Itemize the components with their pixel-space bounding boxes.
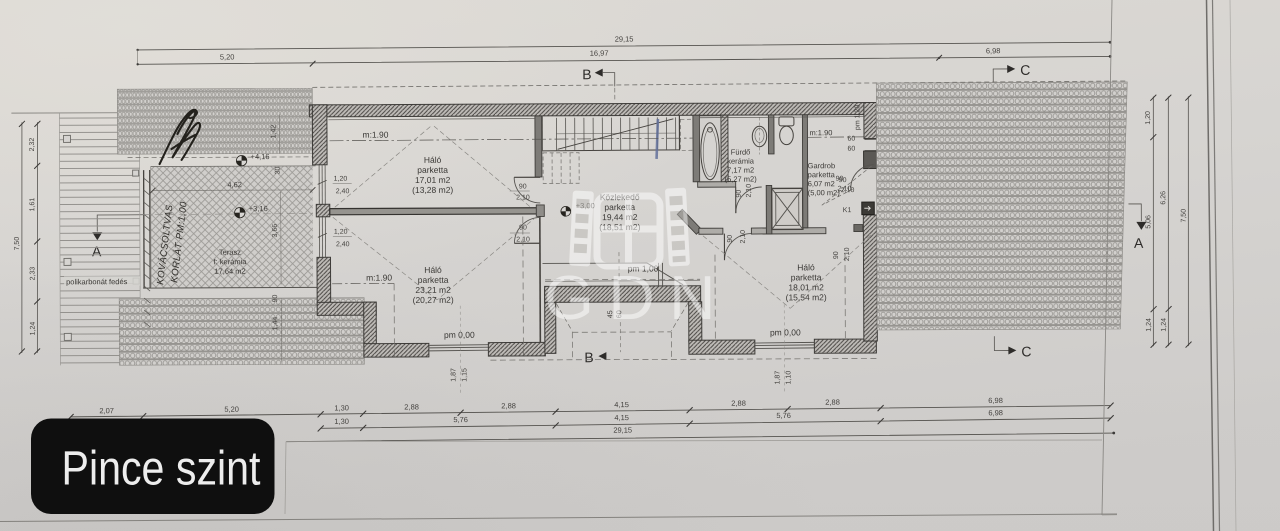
svg-text:Gardrob: Gardrob xyxy=(808,161,836,170)
svg-text:f: kerámia: f: kerámia xyxy=(214,257,248,266)
svg-text:23,21 m2: 23,21 m2 xyxy=(415,285,451,295)
svg-text:2,10: 2,10 xyxy=(838,186,852,193)
svg-text:2,88: 2,88 xyxy=(825,398,840,407)
svg-text:6,98: 6,98 xyxy=(988,396,1003,405)
svg-text:5,76: 5,76 xyxy=(453,415,468,424)
svg-text:pm 0,00: pm 0,00 xyxy=(444,330,475,340)
svg-text:m:1.90: m:1.90 xyxy=(366,273,392,283)
svg-text:6,98: 6,98 xyxy=(988,408,1003,417)
svg-text:17,64 m2: 17,64 m2 xyxy=(214,267,245,276)
svg-text:1,15: 1,15 xyxy=(461,368,468,382)
svg-text:1,24: 1,24 xyxy=(1146,318,1153,332)
svg-text:90: 90 xyxy=(736,190,743,198)
svg-text:A: A xyxy=(1134,235,1144,251)
svg-text:(5,27 m2): (5,27 m2) xyxy=(725,175,758,184)
svg-text:GDN: GDN xyxy=(544,264,730,333)
svg-text:+4,16: +4,16 xyxy=(251,152,270,161)
svg-text:C: C xyxy=(1021,343,1031,359)
svg-text:parketta: parketta xyxy=(417,165,448,175)
svg-text:3,66: 3,66 xyxy=(272,224,279,238)
svg-text:4,15: 4,15 xyxy=(614,400,629,409)
svg-text:1,87: 1,87 xyxy=(774,371,781,385)
svg-text:parketta: parketta xyxy=(418,275,449,285)
svg-text:parketta: parketta xyxy=(791,272,822,282)
svg-text:2,07: 2,07 xyxy=(99,406,114,415)
svg-text:pm 1,20: pm 1,20 xyxy=(854,105,861,130)
svg-text:5,06: 5,06 xyxy=(1145,215,1152,229)
svg-text:1,30: 1,30 xyxy=(334,417,349,426)
svg-text:polikarbonát fedés: polikarbonát fedés xyxy=(66,277,128,286)
svg-text:90: 90 xyxy=(836,176,844,183)
svg-text:B: B xyxy=(582,66,591,82)
svg-text:7,50: 7,50 xyxy=(14,237,21,251)
svg-text:m:1.90: m:1.90 xyxy=(362,130,388,140)
svg-text:4,15: 4,15 xyxy=(614,413,629,422)
svg-text:2,88: 2,88 xyxy=(501,401,516,410)
svg-text:30: 30 xyxy=(275,167,282,175)
svg-text:2,10: 2,10 xyxy=(740,230,747,244)
svg-text:1,20: 1,20 xyxy=(1145,111,1152,125)
svg-text:90: 90 xyxy=(272,295,279,303)
svg-text:2,10: 2,10 xyxy=(746,184,753,198)
svg-text:18,01 m2: 18,01 m2 xyxy=(788,282,824,292)
svg-text:29,15: 29,15 xyxy=(615,35,634,44)
svg-text:90: 90 xyxy=(833,251,840,259)
svg-text:Terasz: Terasz xyxy=(219,248,241,257)
svg-text:19,44 m2: 19,44 m2 xyxy=(602,212,638,222)
svg-text:1,10: 1,10 xyxy=(785,371,792,385)
svg-text:6,07 m2: 6,07 m2 xyxy=(808,179,835,188)
svg-text:1,42: 1,42 xyxy=(270,125,277,139)
svg-text:29,15: 29,15 xyxy=(613,426,632,435)
svg-text:6,98: 6,98 xyxy=(986,46,1001,55)
svg-text:Háló: Háló xyxy=(424,265,442,275)
svg-text:(15,54 m2): (15,54 m2) xyxy=(786,292,827,302)
svg-text:6,26: 6,26 xyxy=(1160,191,1167,205)
svg-text:(20,27 m2): (20,27 m2) xyxy=(413,295,454,305)
svg-text:2,33: 2,33 xyxy=(30,267,37,281)
svg-text:16,97: 16,97 xyxy=(590,49,609,58)
svg-text:(13,28 m2): (13,28 m2) xyxy=(412,185,453,195)
svg-text:1,24: 1,24 xyxy=(30,322,37,336)
svg-text:m:1.90: m:1.90 xyxy=(809,128,832,137)
svg-text:1,24: 1,24 xyxy=(1161,318,1168,332)
svg-text:kerámia: kerámia xyxy=(727,157,755,166)
svg-text:5,20: 5,20 xyxy=(220,52,235,61)
svg-text:pm 0,00: pm 0,00 xyxy=(770,327,801,337)
svg-text:2,88: 2,88 xyxy=(404,402,419,411)
svg-text:2,88: 2,88 xyxy=(731,399,746,408)
svg-text:1,30: 1,30 xyxy=(334,403,349,412)
svg-text:1,44: 1,44 xyxy=(272,317,279,331)
svg-text:1,20: 1,20 xyxy=(334,229,348,236)
svg-text:+3,16: +3,16 xyxy=(249,204,268,213)
svg-text:17,01 m2: 17,01 m2 xyxy=(415,175,451,185)
svg-text:C: C xyxy=(1020,62,1030,78)
svg-text:parketta: parketta xyxy=(808,170,836,179)
svg-text:1,20: 1,20 xyxy=(334,176,348,183)
svg-text:5,20: 5,20 xyxy=(224,405,239,414)
svg-text:5,76: 5,76 xyxy=(776,411,791,420)
svg-text:90: 90 xyxy=(727,235,734,243)
svg-text:2,40: 2,40 xyxy=(336,188,350,195)
svg-text:K1: K1 xyxy=(843,207,852,214)
svg-text:7,50: 7,50 xyxy=(1181,209,1188,223)
svg-text:7,17 m2: 7,17 m2 xyxy=(727,166,754,175)
svg-text:1,87: 1,87 xyxy=(450,368,457,382)
svg-text:Háló: Háló xyxy=(797,262,815,272)
svg-text:60: 60 xyxy=(848,146,856,153)
svg-text:4,62: 4,62 xyxy=(227,180,242,189)
svg-text:2,10: 2,10 xyxy=(844,247,851,261)
svg-text:(5,00 m2): (5,00 m2) xyxy=(808,188,841,197)
svg-text:1,61: 1,61 xyxy=(29,198,36,212)
svg-text:Pince szint: Pince szint xyxy=(62,443,261,496)
svg-text:B: B xyxy=(584,349,593,365)
svg-text:90: 90 xyxy=(519,183,527,190)
svg-text:2,40: 2,40 xyxy=(336,241,350,248)
svg-text:2,32: 2,32 xyxy=(29,138,36,152)
svg-text:Fürdő: Fürdő xyxy=(731,148,751,157)
svg-text:Háló: Háló xyxy=(424,155,442,165)
